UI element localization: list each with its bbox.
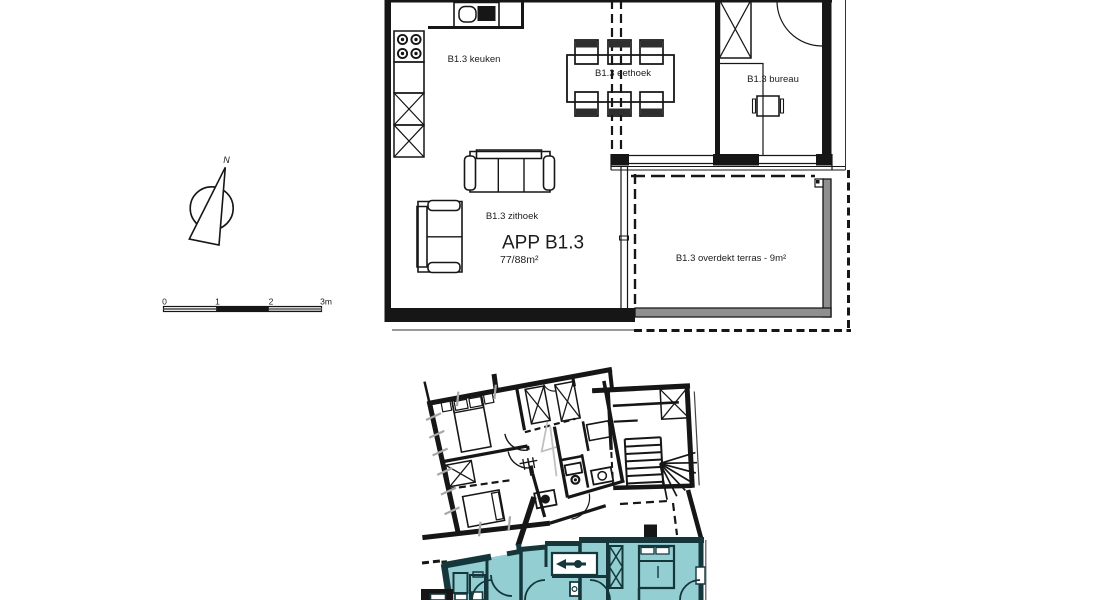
svg-text:APP B1.3: APP B1.3 — [502, 233, 584, 254]
svg-text:B1.3 overdekt terras - 9m²: B1.3 overdekt terras - 9m² — [676, 253, 786, 264]
svg-text:B1.3 keuken: B1.3 keuken — [448, 54, 501, 65]
svg-text:1: 1 — [215, 297, 220, 307]
svg-text:0: 0 — [162, 297, 167, 307]
svg-text:N: N — [223, 155, 230, 165]
svg-text:3m: 3m — [320, 297, 332, 307]
svg-text:B1.3 eethoek: B1.3 eethoek — [595, 68, 651, 79]
svg-text:77/88m²: 77/88m² — [500, 254, 539, 266]
svg-text:B1.3 bureau: B1.3 bureau — [747, 74, 799, 85]
svg-text:2: 2 — [269, 297, 274, 307]
svg-text:B1.3 zithoek: B1.3 zithoek — [486, 211, 539, 222]
